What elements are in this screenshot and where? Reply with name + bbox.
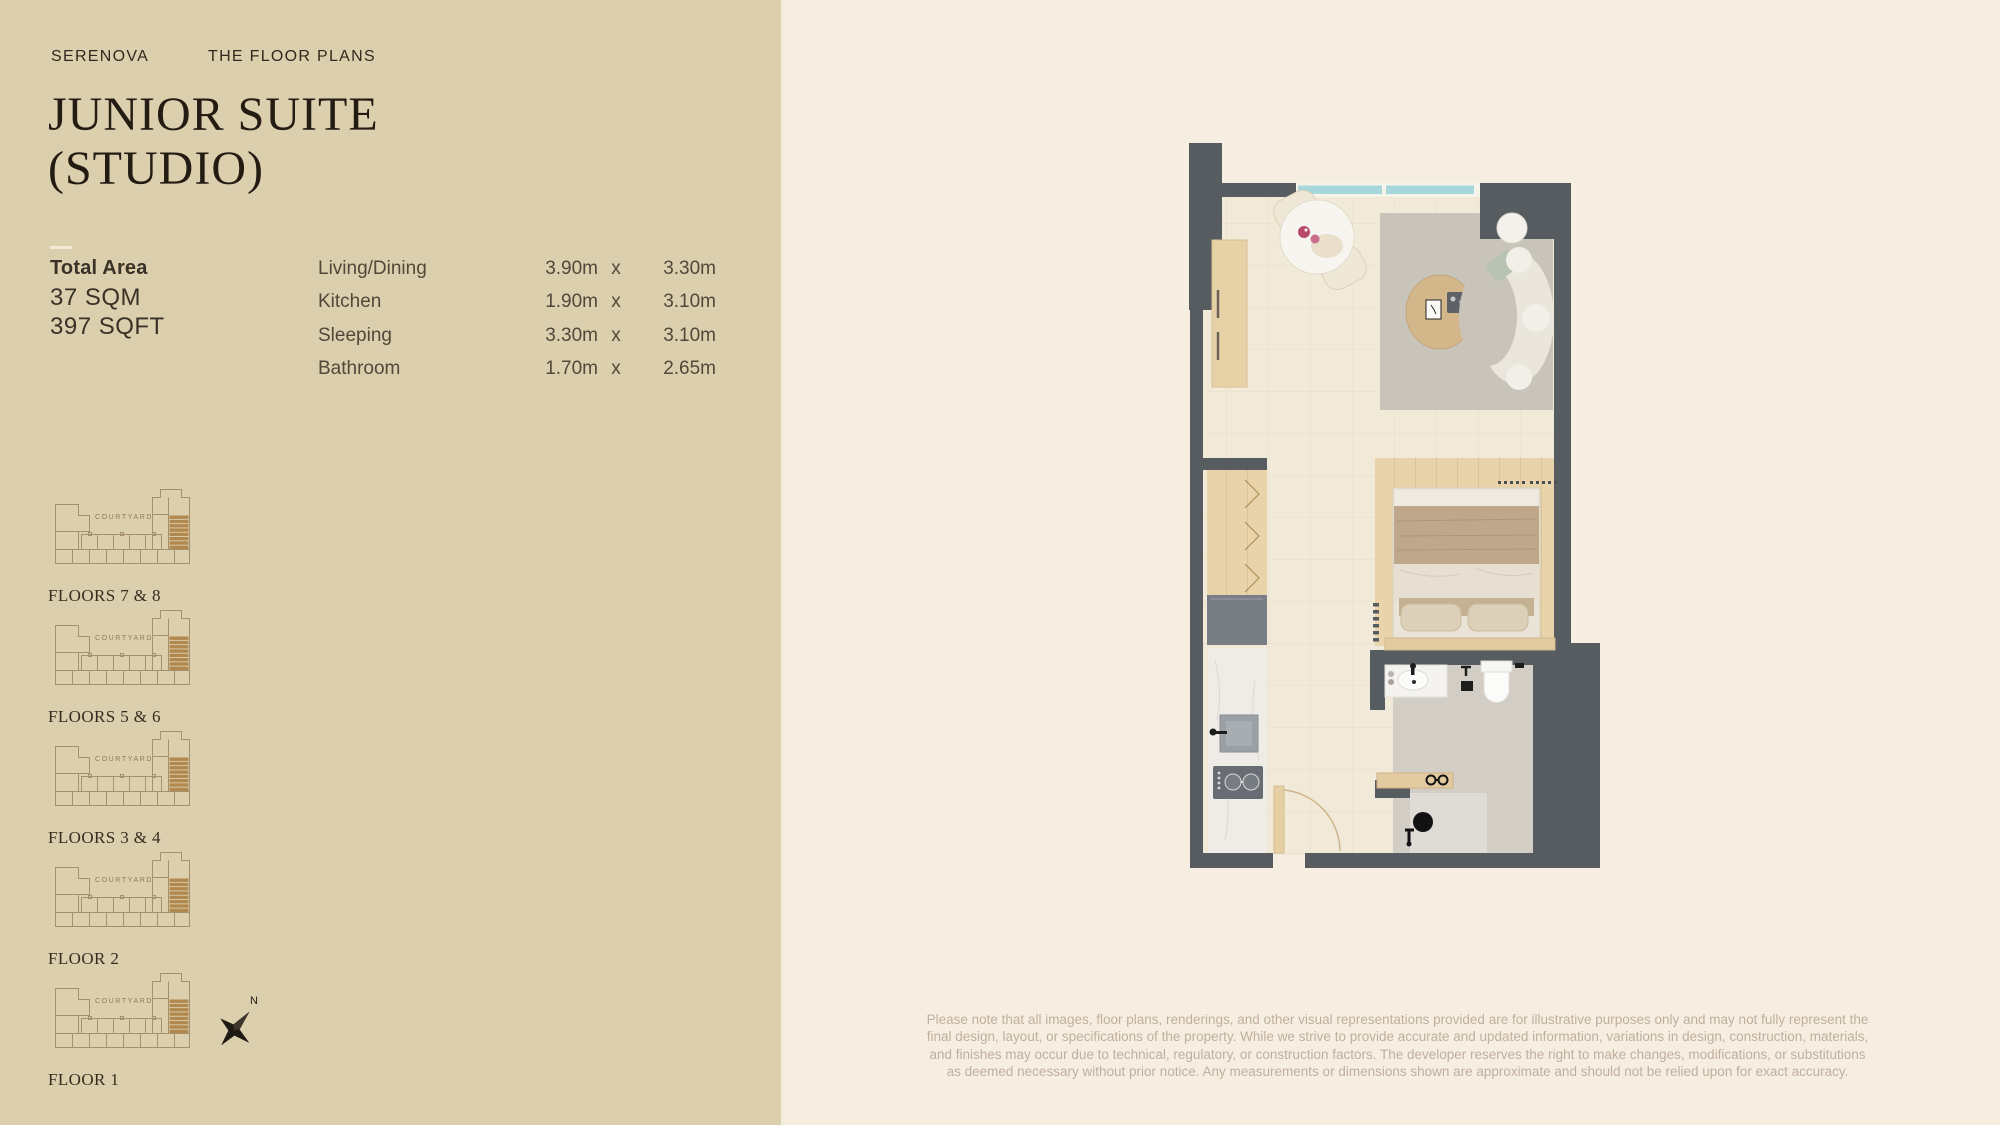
shower-drain xyxy=(1413,812,1433,832)
cooktop-burner xyxy=(1243,774,1259,790)
left-panel: SERENOVA THE FLOOR PLANS JUNIOR SUITE (S… xyxy=(0,0,784,1125)
dining-plate xyxy=(1311,235,1320,244)
area-divider-dash xyxy=(50,246,72,249)
wall-right xyxy=(1554,183,1571,648)
dim-row-height: 3.10m xyxy=(634,291,716,313)
keyplan-caption: FLOOR 2 xyxy=(48,949,248,969)
total-area-sqft: 397 SQFT xyxy=(50,313,165,341)
disclaimer: Please note that all images, floor plans… xyxy=(885,1011,1910,1081)
dim-row-label: Living/Dining xyxy=(318,258,506,280)
kitchen-sink-basin xyxy=(1226,721,1252,746)
windows xyxy=(1296,183,1480,197)
north-compass-icon: N xyxy=(208,986,270,1058)
toilet-bowl xyxy=(1484,672,1509,703)
dim-row-sep: x xyxy=(598,258,634,280)
wall-top xyxy=(1222,183,1296,197)
dim-row-height: 3.10m xyxy=(634,325,716,347)
sofa-cushion xyxy=(1522,304,1550,332)
wall-wardrobe-stub xyxy=(1203,458,1267,470)
tray-item xyxy=(1451,297,1456,302)
wall-bottom xyxy=(1305,853,1600,868)
dim-row-sep: x xyxy=(598,325,634,347)
dim-row-label: Sleeping xyxy=(318,325,506,347)
dim-row-height: 3.30m xyxy=(634,258,716,280)
disclaimer-line: final design, layout, or specifications … xyxy=(885,1028,1910,1045)
compass-north-label: N xyxy=(250,995,258,1007)
page-title: JUNIOR SUITE (STUDIO) xyxy=(48,88,528,196)
key-plan-diagram xyxy=(48,604,198,699)
shower-control xyxy=(1461,681,1473,691)
wall-bottom-left xyxy=(1190,853,1273,868)
soap-bottle xyxy=(1388,671,1394,677)
sleeping-area xyxy=(1373,481,1557,650)
wall-left xyxy=(1190,180,1203,868)
toilet-tank xyxy=(1481,661,1512,672)
section-label: THE FLOOR PLANS xyxy=(208,48,376,66)
keyplan-caption: FLOOR 1 xyxy=(48,1070,248,1090)
keyplan-floor-2: FLOOR 2 xyxy=(48,846,248,969)
disclaimer-line: and finishes may occur due to technical,… xyxy=(885,1046,1910,1063)
key-plan-diagram xyxy=(48,846,198,941)
keyplan-floors-7-8: FLOORS 7 & 8 xyxy=(48,483,248,606)
cooktop-burner xyxy=(1225,774,1241,790)
key-plan-diagram xyxy=(48,483,198,578)
dim-row-width: 1.90m xyxy=(506,291,598,313)
headboard-shelf xyxy=(1385,638,1555,650)
side-table xyxy=(1497,213,1527,243)
wardrobe-kitchen-area xyxy=(1207,470,1267,853)
shower-head-dot xyxy=(1407,842,1412,847)
room-dimensions-table: Living/Dining 3.90m x 3.30m Kitchen 1.90… xyxy=(318,252,716,386)
sink-drain xyxy=(1412,680,1416,684)
key-plan-diagram xyxy=(48,967,198,1062)
window-glass-right xyxy=(1386,186,1474,195)
wall-bottom-right-block xyxy=(1533,643,1600,868)
bed-pillow xyxy=(1468,604,1528,631)
bed-duvet-fold xyxy=(1395,490,1538,507)
keyplan-floors-5-6: FLOORS 5 & 6 xyxy=(48,604,248,727)
vanity-faucet-head xyxy=(1410,663,1416,669)
total-area-sqm: 37 SQM xyxy=(50,284,141,312)
dim-row-label: Kitchen xyxy=(318,291,506,313)
dim-row-width: 3.30m xyxy=(506,325,598,347)
key-plan-diagram xyxy=(48,725,198,820)
towel-hook xyxy=(1515,663,1524,668)
sofa-inner-cut xyxy=(1459,266,1517,366)
wall-bathroom-left xyxy=(1370,650,1385,710)
disclaimer-line: Please note that all images, floor plans… xyxy=(885,1011,1910,1028)
dim-row-height: 2.65m xyxy=(634,358,716,380)
sofa-cushion xyxy=(1506,364,1532,390)
page-title-line2: (STUDIO) xyxy=(48,142,528,196)
brand-name: SERENOVA xyxy=(51,48,149,66)
total-area-label: Total Area xyxy=(50,257,148,280)
dim-row-sep: x xyxy=(598,291,634,313)
dim-row-label: Bathroom xyxy=(318,358,506,380)
keyplan-caption: FLOORS 5 & 6 xyxy=(48,707,248,727)
entry-door-leaf xyxy=(1274,786,1284,853)
soap-bottle xyxy=(1388,679,1394,685)
floor-plan xyxy=(1185,140,1605,870)
kitchen-faucet-base xyxy=(1210,729,1217,736)
keyplan-floors-3-4: FLOORS 3 & 4 xyxy=(48,725,248,848)
dining-plate-detail xyxy=(1304,228,1307,231)
dim-row-sep: x xyxy=(598,358,634,380)
keyplan-caption: FLOORS 7 & 8 xyxy=(48,586,248,606)
bed-sheet xyxy=(1394,564,1539,602)
page-title-line1: JUNIOR SUITE xyxy=(48,88,528,142)
disclaimer-line: as deemed necessary without prior notice… xyxy=(885,1063,1910,1080)
dim-row-width: 1.70m xyxy=(506,358,598,380)
refrigerator xyxy=(1207,595,1267,645)
bed-pillow xyxy=(1401,604,1461,631)
sofa-cushion xyxy=(1506,247,1532,273)
dim-row-width: 3.90m xyxy=(506,258,598,280)
keyplan-caption: FLOORS 3 & 4 xyxy=(48,828,248,848)
dining-plate xyxy=(1298,226,1310,238)
